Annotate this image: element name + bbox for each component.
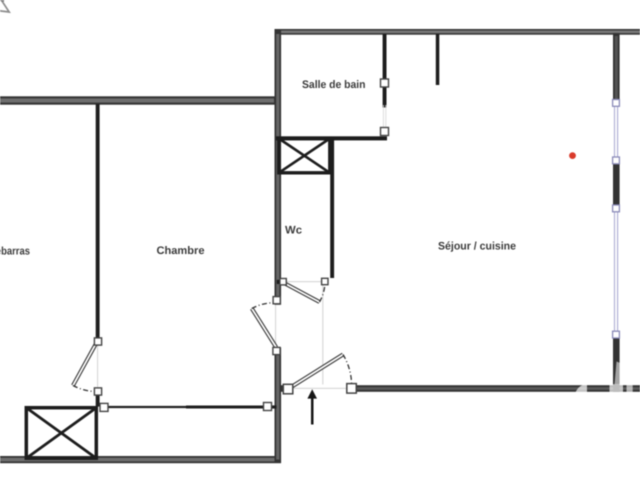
svg-text:Chambre: Chambre xyxy=(157,245,205,257)
svg-text:Séjour / cuisine: Séjour / cuisine xyxy=(438,241,516,253)
svg-text:Wc: Wc xyxy=(285,225,302,237)
svg-text:Salle de bain: Salle de bain xyxy=(302,79,366,91)
svg-text:Débarras: Débarras xyxy=(0,246,30,258)
